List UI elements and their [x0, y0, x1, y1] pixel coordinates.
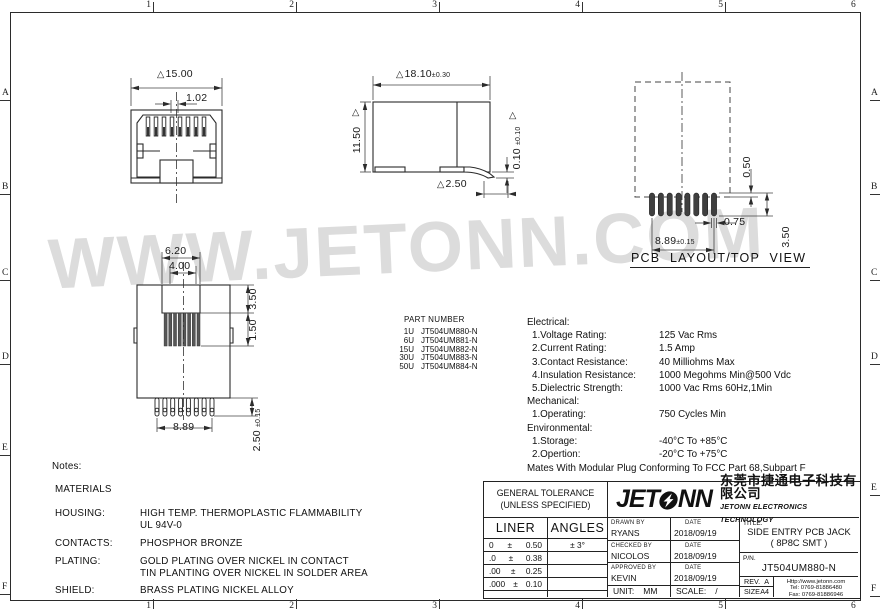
frame-row-label: E — [2, 443, 8, 453]
frame-col-label: 1 — [141, 601, 151, 611]
frame-col-label: 5 — [713, 601, 723, 611]
approved-date-cell: DATE2018/09/19 — [671, 563, 740, 586]
checked-date-cell: DATE2018/09/19 — [671, 541, 740, 564]
frame-col-label: 1 — [141, 0, 151, 10]
tolerance-empty-row — [548, 591, 608, 597]
frame-row-label: E — [871, 483, 877, 493]
fax: Fax: 0769-81886946 — [774, 592, 858, 599]
tolerance-row: .0±0.38 — [484, 552, 548, 565]
frame-row-label: D — [2, 352, 9, 362]
tolerance-row: .000±0.10 — [484, 578, 548, 591]
frame-col-label: 5 — [713, 0, 723, 10]
approved-by-cell: APPROVED BYKEVIN — [608, 563, 671, 586]
tolerance-empty-row — [484, 591, 548, 597]
frame-col-label: 2 — [284, 601, 294, 611]
tolerance-header: GENERAL TOLERANCE (UNLESS SPECIFIED) — [484, 482, 608, 518]
frame-row-label: C — [871, 268, 877, 278]
drawing-title: SIDE ENTRY PCB JACK — [740, 527, 858, 538]
logo-gear-icon — [656, 490, 680, 511]
tolerance-angles-header: ANGLES — [548, 518, 608, 539]
title-block: GENERAL TOLERANCE (UNLESS SPECIFIED) LIN… — [483, 481, 861, 599]
telephone: Tel: 0769-81886480 — [774, 585, 858, 592]
frame-row-label: F — [2, 582, 7, 592]
frame-col-label: 4 — [570, 601, 580, 611]
size-cell: SIZEA4 — [740, 587, 774, 597]
drawing-part-number: JT504UM880-N — [740, 563, 858, 574]
frame-col-label: 6 — [851, 601, 856, 611]
rev-cell: REV.A — [740, 577, 774, 587]
tolerance-row: .00±0.25 — [484, 565, 548, 578]
tolerance-row: 0±0.50 — [484, 539, 548, 552]
website: Http://www.jetonn.com — [774, 579, 858, 586]
drawn-date-cell: DATE2018/09/19 — [671, 518, 740, 541]
frame-row-label: A — [871, 88, 878, 98]
company-name-cn: 东莞市捷通电子科技有限公司 — [720, 474, 859, 500]
frame-row-label: C — [2, 268, 8, 278]
tolerance-liner-header: LINER — [484, 518, 548, 539]
drawing-subtitle: ( 8P8C SMT ) — [740, 538, 858, 549]
tolerance-angle-value: ± 3° — [548, 539, 608, 552]
tolerance-angle-value — [548, 578, 608, 591]
drawing-sheet: WWW.JETONN.COM 1 2 3 4 5 6 1 2 3 4 5 6 A… — [0, 0, 880, 613]
frame-row-label: B — [871, 182, 877, 192]
frame-row-label: F — [871, 584, 876, 594]
title-cell: TITLE. SIDE ENTRY PCB JACK ( 8P8C SMT ) — [740, 518, 858, 553]
frame-row-label: A — [2, 88, 9, 98]
tolerance-angle-value — [548, 565, 608, 578]
tolerance-angle-value — [548, 552, 608, 565]
unit-cell: UNIT:MM — [608, 586, 671, 597]
pn-cell: P/N. JT504UM880-N — [740, 553, 858, 577]
frame-row-label: D — [871, 352, 878, 362]
checked-by-cell: CHECKED BYNICOLOS — [608, 541, 671, 564]
jetonn-logo: JETNN — [616, 485, 712, 514]
frame-col-label: 6 — [851, 0, 856, 10]
frame-row-label: B — [2, 182, 8, 192]
frame-col-label: 3 — [427, 601, 437, 611]
logo-row: JETNN 东莞市捷通电子科技有限公司 JETONN ELECTRONICS T… — [608, 482, 859, 518]
frame-col-label: 3 — [427, 0, 437, 10]
scale-cell: SCALE:/ — [671, 586, 740, 597]
drawn-by-cell: DRAWN BYRYANS — [608, 518, 671, 541]
frame-col-label: 4 — [570, 0, 580, 10]
contact-info-cell: Http://www.jetonn.com Tel: 0769-81886480… — [774, 577, 858, 597]
frame-col-label: 2 — [284, 0, 294, 10]
